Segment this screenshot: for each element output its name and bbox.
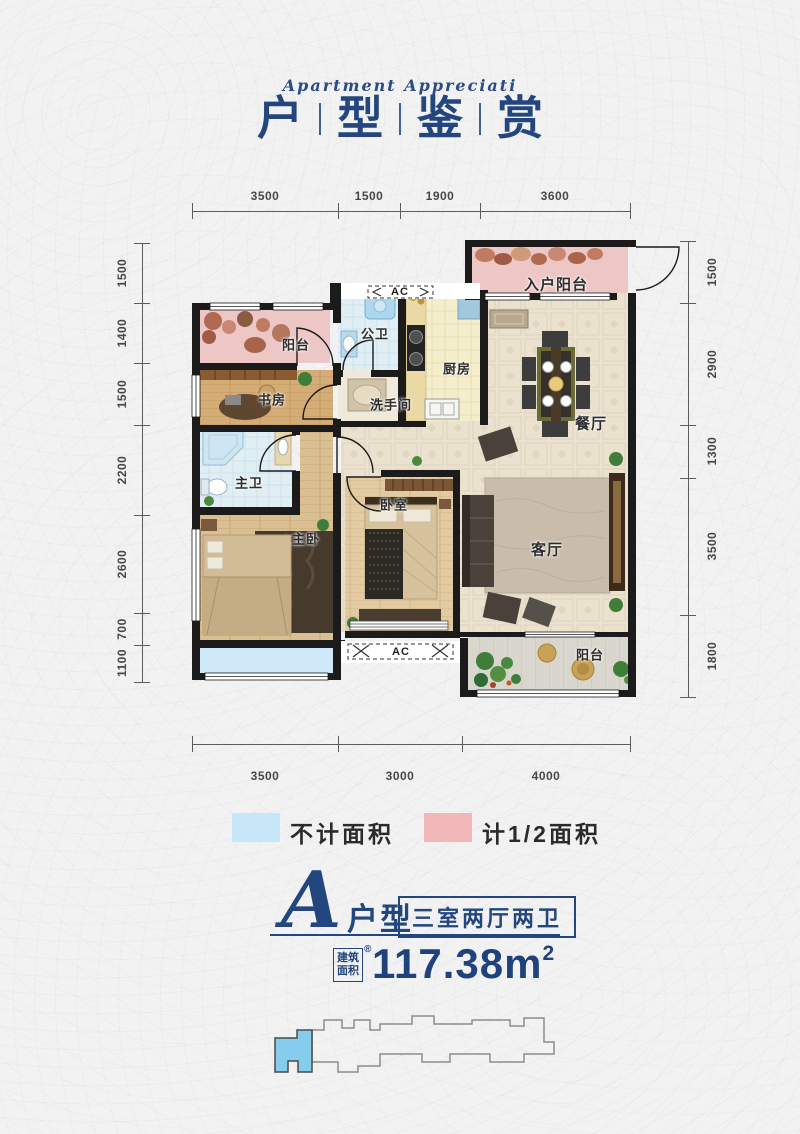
dim-label: 3500 bbox=[251, 769, 280, 783]
dim-label: 1400 bbox=[115, 319, 129, 348]
subtitle-english: Apartment Appreciati bbox=[0, 76, 800, 95]
title-divider bbox=[319, 103, 321, 135]
legend-swatch-not-counted bbox=[232, 813, 280, 842]
room-label-master-bath: 主卫 bbox=[235, 473, 263, 492]
dim-label: 3500 bbox=[251, 189, 280, 203]
room-label-balcony-bottom: 阳台 bbox=[576, 645, 604, 664]
dim-label: 1500 bbox=[355, 189, 384, 203]
title-char: 鉴 bbox=[417, 96, 463, 142]
unit-highlight bbox=[275, 1030, 312, 1072]
dim-label: 2200 bbox=[115, 456, 129, 485]
title-char: 型 bbox=[337, 96, 383, 142]
title-char: 户 bbox=[257, 96, 303, 142]
title-divider bbox=[399, 103, 401, 135]
title-divider bbox=[479, 103, 481, 135]
legend-swatch-half-counted bbox=[424, 813, 472, 842]
room-label-master-bedroom: 主卧 bbox=[292, 529, 320, 548]
room-label-living: 客厅 bbox=[531, 539, 563, 560]
unit-underline bbox=[270, 934, 560, 936]
building-footprint bbox=[262, 1008, 562, 1088]
dim-label: 1900 bbox=[426, 189, 455, 203]
dim-label: 3600 bbox=[541, 189, 570, 203]
dim-label: 3500 bbox=[705, 532, 719, 561]
dim-label: 1100 bbox=[115, 649, 129, 677]
area-label-box: 建筑 面积 bbox=[333, 948, 363, 982]
area-superscript: 2 bbox=[543, 942, 556, 965]
room-label-balcony-top: 阳台 bbox=[282, 335, 310, 354]
unit-letter: A bbox=[281, 862, 342, 940]
poster-page: Apartment Appreciati 户 型 鉴 赏 3500 1500 1… bbox=[0, 0, 800, 1134]
dim-label: 1500 bbox=[115, 380, 129, 409]
room-label-dining: 餐厅 bbox=[575, 413, 607, 434]
building-outline bbox=[312, 1016, 554, 1072]
unit-layout-box: 三室两厅两卫 bbox=[398, 896, 576, 938]
page-title: 户 型 鉴 赏 bbox=[0, 96, 800, 142]
dim-label: 2600 bbox=[115, 550, 129, 579]
dim-label: 1800 bbox=[705, 642, 719, 671]
ac-label-top: AC bbox=[391, 286, 409, 298]
ac-label-bottom: AC bbox=[392, 646, 410, 658]
dim-label: 4000 bbox=[532, 769, 561, 783]
dim-label: 1300 bbox=[705, 437, 719, 466]
room-label-kitchen: 厨房 bbox=[443, 359, 471, 378]
dim-label: 1500 bbox=[115, 259, 129, 288]
registered-mark: ® bbox=[364, 944, 371, 955]
legend-label-not-counted: 不计面积 bbox=[290, 815, 394, 849]
legend-label-half-counted: 计1/2面积 bbox=[482, 815, 601, 849]
dim-label: 2900 bbox=[705, 350, 719, 379]
room-label-study: 书房 bbox=[258, 390, 286, 409]
dim-label: 700 bbox=[115, 618, 129, 640]
dim-label: 3000 bbox=[386, 769, 415, 783]
dim-label: 1500 bbox=[705, 258, 719, 287]
room-label-bedroom: 卧室 bbox=[380, 495, 408, 514]
room-label-washroom: 洗手间 bbox=[370, 395, 412, 414]
title-char: 赏 bbox=[497, 96, 543, 142]
room-label-public-bath: 公卫 bbox=[361, 324, 389, 343]
area-value: 117.38m2 bbox=[372, 940, 555, 988]
room-label-entry-balcony: 入户阳台 bbox=[524, 274, 588, 295]
floorplan-graphic bbox=[185, 233, 685, 703]
